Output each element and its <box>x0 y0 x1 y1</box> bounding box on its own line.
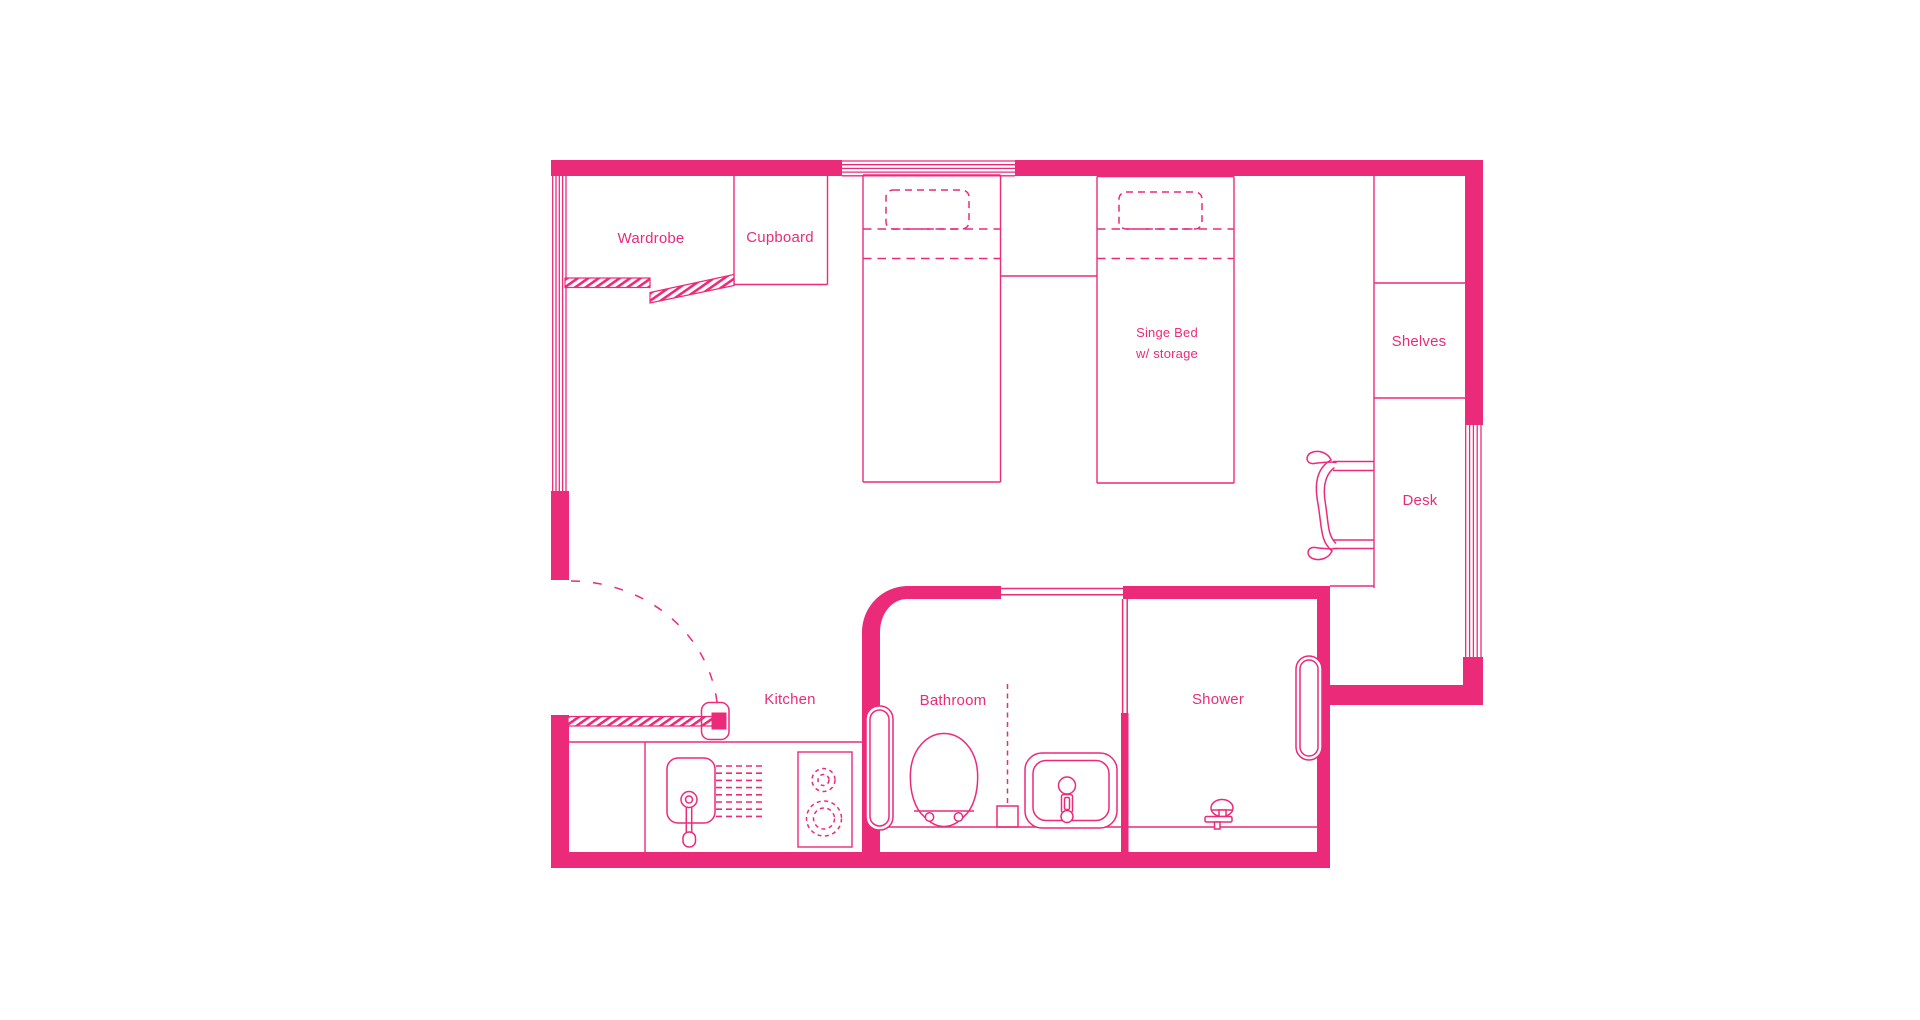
floor-plan-page: Wardrobe Cupboard Singe Bed w/ storage S… <box>0 0 1920 1020</box>
wall-left-lower <box>551 715 569 868</box>
wall-right-window-cap <box>1463 657 1483 687</box>
desk-surface <box>1333 462 1374 549</box>
wall-top-right <box>1015 160 1483 176</box>
glass-partitions <box>1001 589 1127 714</box>
left-window <box>553 176 566 491</box>
label-bathroom: Bathroom <box>920 692 987 709</box>
kitchen-sink <box>667 758 715 847</box>
shower-head <box>1205 800 1233 830</box>
bathroom-front-glass <box>1001 589 1123 595</box>
rack-dashes <box>716 766 762 816</box>
stove-outline <box>798 752 852 847</box>
label-cupboard: Cupboard <box>746 229 813 246</box>
label-desk: Desk <box>1403 492 1438 509</box>
label-shower: Shower <box>1192 691 1244 708</box>
dashed-elements <box>571 190 1234 836</box>
wall-top-left <box>551 160 842 176</box>
wall-right-upper <box>1465 160 1483 425</box>
drying-rack <box>716 766 762 816</box>
bed-2-pillow <box>1119 192 1202 229</box>
floor-plan-drawing: Wardrobe Cupboard Singe Bed w/ storage S… <box>0 0 1920 1020</box>
windows <box>553 161 1481 657</box>
bed-fold-lines <box>863 229 1234 259</box>
toilet <box>910 734 977 827</box>
bathroom-door <box>866 706 893 830</box>
wall-bottom-main <box>551 852 1330 868</box>
wall-bathroom-top <box>905 586 1001 599</box>
shower-door <box>1296 656 1322 760</box>
label-kitchen: Kitchen <box>764 691 815 708</box>
desk-chair <box>1307 451 1337 559</box>
wall-bath-shower-divider <box>1121 713 1129 852</box>
wall-right-column-bottom <box>1330 685 1483 705</box>
hatched-strips <box>565 275 734 727</box>
wall-left-mid <box>551 491 569 580</box>
stove-burners <box>807 769 842 837</box>
bed-1-frame <box>863 175 1001 482</box>
label-single-bed-line1: Singe Bed <box>1136 325 1198 340</box>
fixtures <box>667 451 1337 847</box>
wall-bathroom-rounded-corner <box>862 586 908 632</box>
wardrobe-rail-2 <box>650 275 734 304</box>
wardrobe-rail-1 <box>565 278 650 288</box>
top-window <box>842 161 1015 176</box>
bathroom-sink <box>1025 753 1117 828</box>
right-window <box>1466 425 1481 657</box>
label-wardrobe: Wardrobe <box>618 230 685 247</box>
entry-door-swing-arc <box>571 581 718 718</box>
entry-door-leaf <box>568 717 721 727</box>
bath-shower-glass-divider <box>1123 599 1128 713</box>
furniture-lines <box>569 175 1465 852</box>
bed-1-pillow <box>886 190 969 229</box>
wall-shower-top <box>1123 586 1330 599</box>
label-shelves: Shelves <box>1392 333 1447 350</box>
towel-rail <box>997 684 1018 827</box>
label-single-bed-line2: w/ storage <box>1135 346 1198 361</box>
shelves-desk-partition <box>1330 176 1465 588</box>
